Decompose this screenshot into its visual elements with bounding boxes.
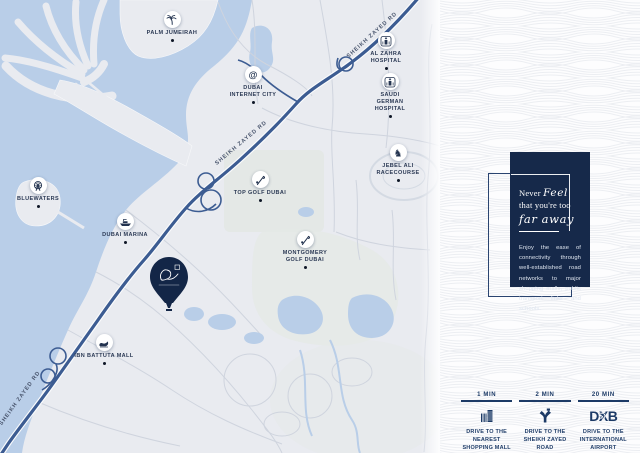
marker-label: TOP GOLF DUBAI bbox=[234, 190, 286, 197]
drive-time-item-mall: 1 MIN DRIVE TO THE NEAREST SHOPPING MALL bbox=[461, 392, 512, 452]
ferris-wheel-icon bbox=[30, 177, 47, 194]
map-marker-palm-jumeirah: PALM JUMEIRAH bbox=[137, 11, 207, 42]
marker-dot bbox=[103, 362, 106, 365]
drive-time-caption: DRIVE TO THE INTERNATIONAL AIRPORT bbox=[578, 428, 629, 453]
golf-icon bbox=[252, 171, 269, 188]
road-junction-icon bbox=[537, 407, 553, 425]
drive-time-item-road: 2 MIN DRIVE TO THE SHEIKH ZAYED ROAD bbox=[519, 392, 570, 452]
horse-icon: ♞ bbox=[390, 144, 407, 161]
panel-frame-highlight-right bbox=[569, 174, 570, 231]
hospital-icon bbox=[378, 32, 395, 49]
map-marker-dubai-marina: DUBAI MARINA bbox=[95, 213, 155, 244]
divider-line bbox=[578, 400, 629, 402]
panel-heading-underline bbox=[519, 231, 559, 232]
marker-label: DUBAI MARINA bbox=[102, 232, 148, 239]
panel-heading-line1: Never Feel bbox=[519, 186, 581, 200]
hospital-icon bbox=[382, 73, 399, 90]
marker-label: DUBAI INTERNET CITY bbox=[229, 85, 277, 99]
drive-time-item-airport: 20 MIN DXB ✈ DRIVE TO THE INTERNATIONAL … bbox=[578, 392, 629, 452]
marker-label: MONTGOMERY GOLF DUBAI bbox=[277, 250, 333, 264]
palm-icon bbox=[164, 11, 181, 28]
marker-label: AL ZAHRA HOSPITAL bbox=[364, 51, 408, 65]
map-marker-top-golf-dubai: TOP GOLF DUBAI bbox=[225, 171, 295, 202]
divider-line bbox=[461, 400, 512, 402]
shoe-icon bbox=[96, 334, 113, 351]
panel-heading-line3: far away bbox=[519, 212, 581, 228]
marker-label: JEBEL ALI RACECOURSE bbox=[373, 163, 423, 177]
marker-dot bbox=[37, 205, 40, 208]
drive-time-caption: DRIVE TO THE SHEIKH ZAYED ROAD bbox=[519, 428, 570, 453]
mall-icon bbox=[479, 407, 495, 425]
at-icon: @ bbox=[245, 66, 262, 83]
development-balloon-pin bbox=[148, 256, 190, 314]
divider-line bbox=[519, 400, 570, 402]
map-marker-bluewaters: BLUEWATERS bbox=[8, 177, 68, 208]
marker-label: PALM JUMEIRAH bbox=[147, 30, 198, 37]
map-marker-saudi-german-hospital: SAUDI GERMAN HOSPITAL bbox=[367, 73, 413, 118]
map-marker-ibn-battuta-mall: IBN BATTUTA MALL bbox=[69, 334, 139, 365]
marker-dot bbox=[259, 199, 262, 202]
map-marker-montgomery-golf-dubai: MONTGOMERY GOLF DUBAI bbox=[277, 231, 333, 269]
panel-frame-highlight-top bbox=[511, 174, 570, 175]
marker-label: BLUEWATERS bbox=[17, 196, 59, 203]
info-panel: Never Feel that you're too far away Enjo… bbox=[510, 152, 590, 287]
panel-body-text: Enjoy the ease of connectivity through w… bbox=[519, 243, 581, 314]
marker-dot bbox=[389, 115, 392, 118]
svg-text:♞: ♞ bbox=[394, 148, 403, 158]
drive-time-caption: DRIVE TO THE NEAREST SHOPPING MALL bbox=[461, 428, 512, 453]
svg-text:@: @ bbox=[249, 70, 258, 80]
dxb-logo: DXB ✈ bbox=[589, 407, 617, 425]
drive-time-legend: 1 MIN DRIVE TO THE NEAREST SHOPPING MALL… bbox=[461, 392, 629, 452]
marker-dot bbox=[397, 179, 400, 182]
marker-dot bbox=[171, 39, 174, 42]
drive-time-value: 1 MIN bbox=[477, 392, 496, 398]
marker-label: IBN BATTUTA MALL bbox=[74, 353, 133, 360]
location-map-page: SHEIKH ZAYED RD SHEIKH ZAYED RD SHEIKH Z… bbox=[0, 0, 640, 453]
marker-dot bbox=[124, 241, 127, 244]
marker-dot bbox=[252, 101, 255, 104]
marker-label: SAUDI GERMAN HOSPITAL bbox=[367, 92, 413, 113]
map-marker-jebel-ali-racecourse: ♞ JEBEL ALI RACECOURSE bbox=[373, 144, 423, 182]
drive-time-value: 20 MIN bbox=[592, 392, 615, 398]
drive-time-value: 2 MIN bbox=[535, 392, 554, 398]
map-marker-al-zahra-hospital: AL ZAHRA HOSPITAL bbox=[364, 32, 408, 70]
marker-dot bbox=[304, 266, 307, 269]
golf-icon bbox=[297, 231, 314, 248]
boat-icon bbox=[117, 213, 134, 230]
panel-heading-line2: that you're too bbox=[519, 200, 581, 211]
marker-dot bbox=[385, 67, 388, 70]
map-marker-dubai-internet-city: @ DUBAI INTERNET CITY bbox=[229, 66, 277, 104]
